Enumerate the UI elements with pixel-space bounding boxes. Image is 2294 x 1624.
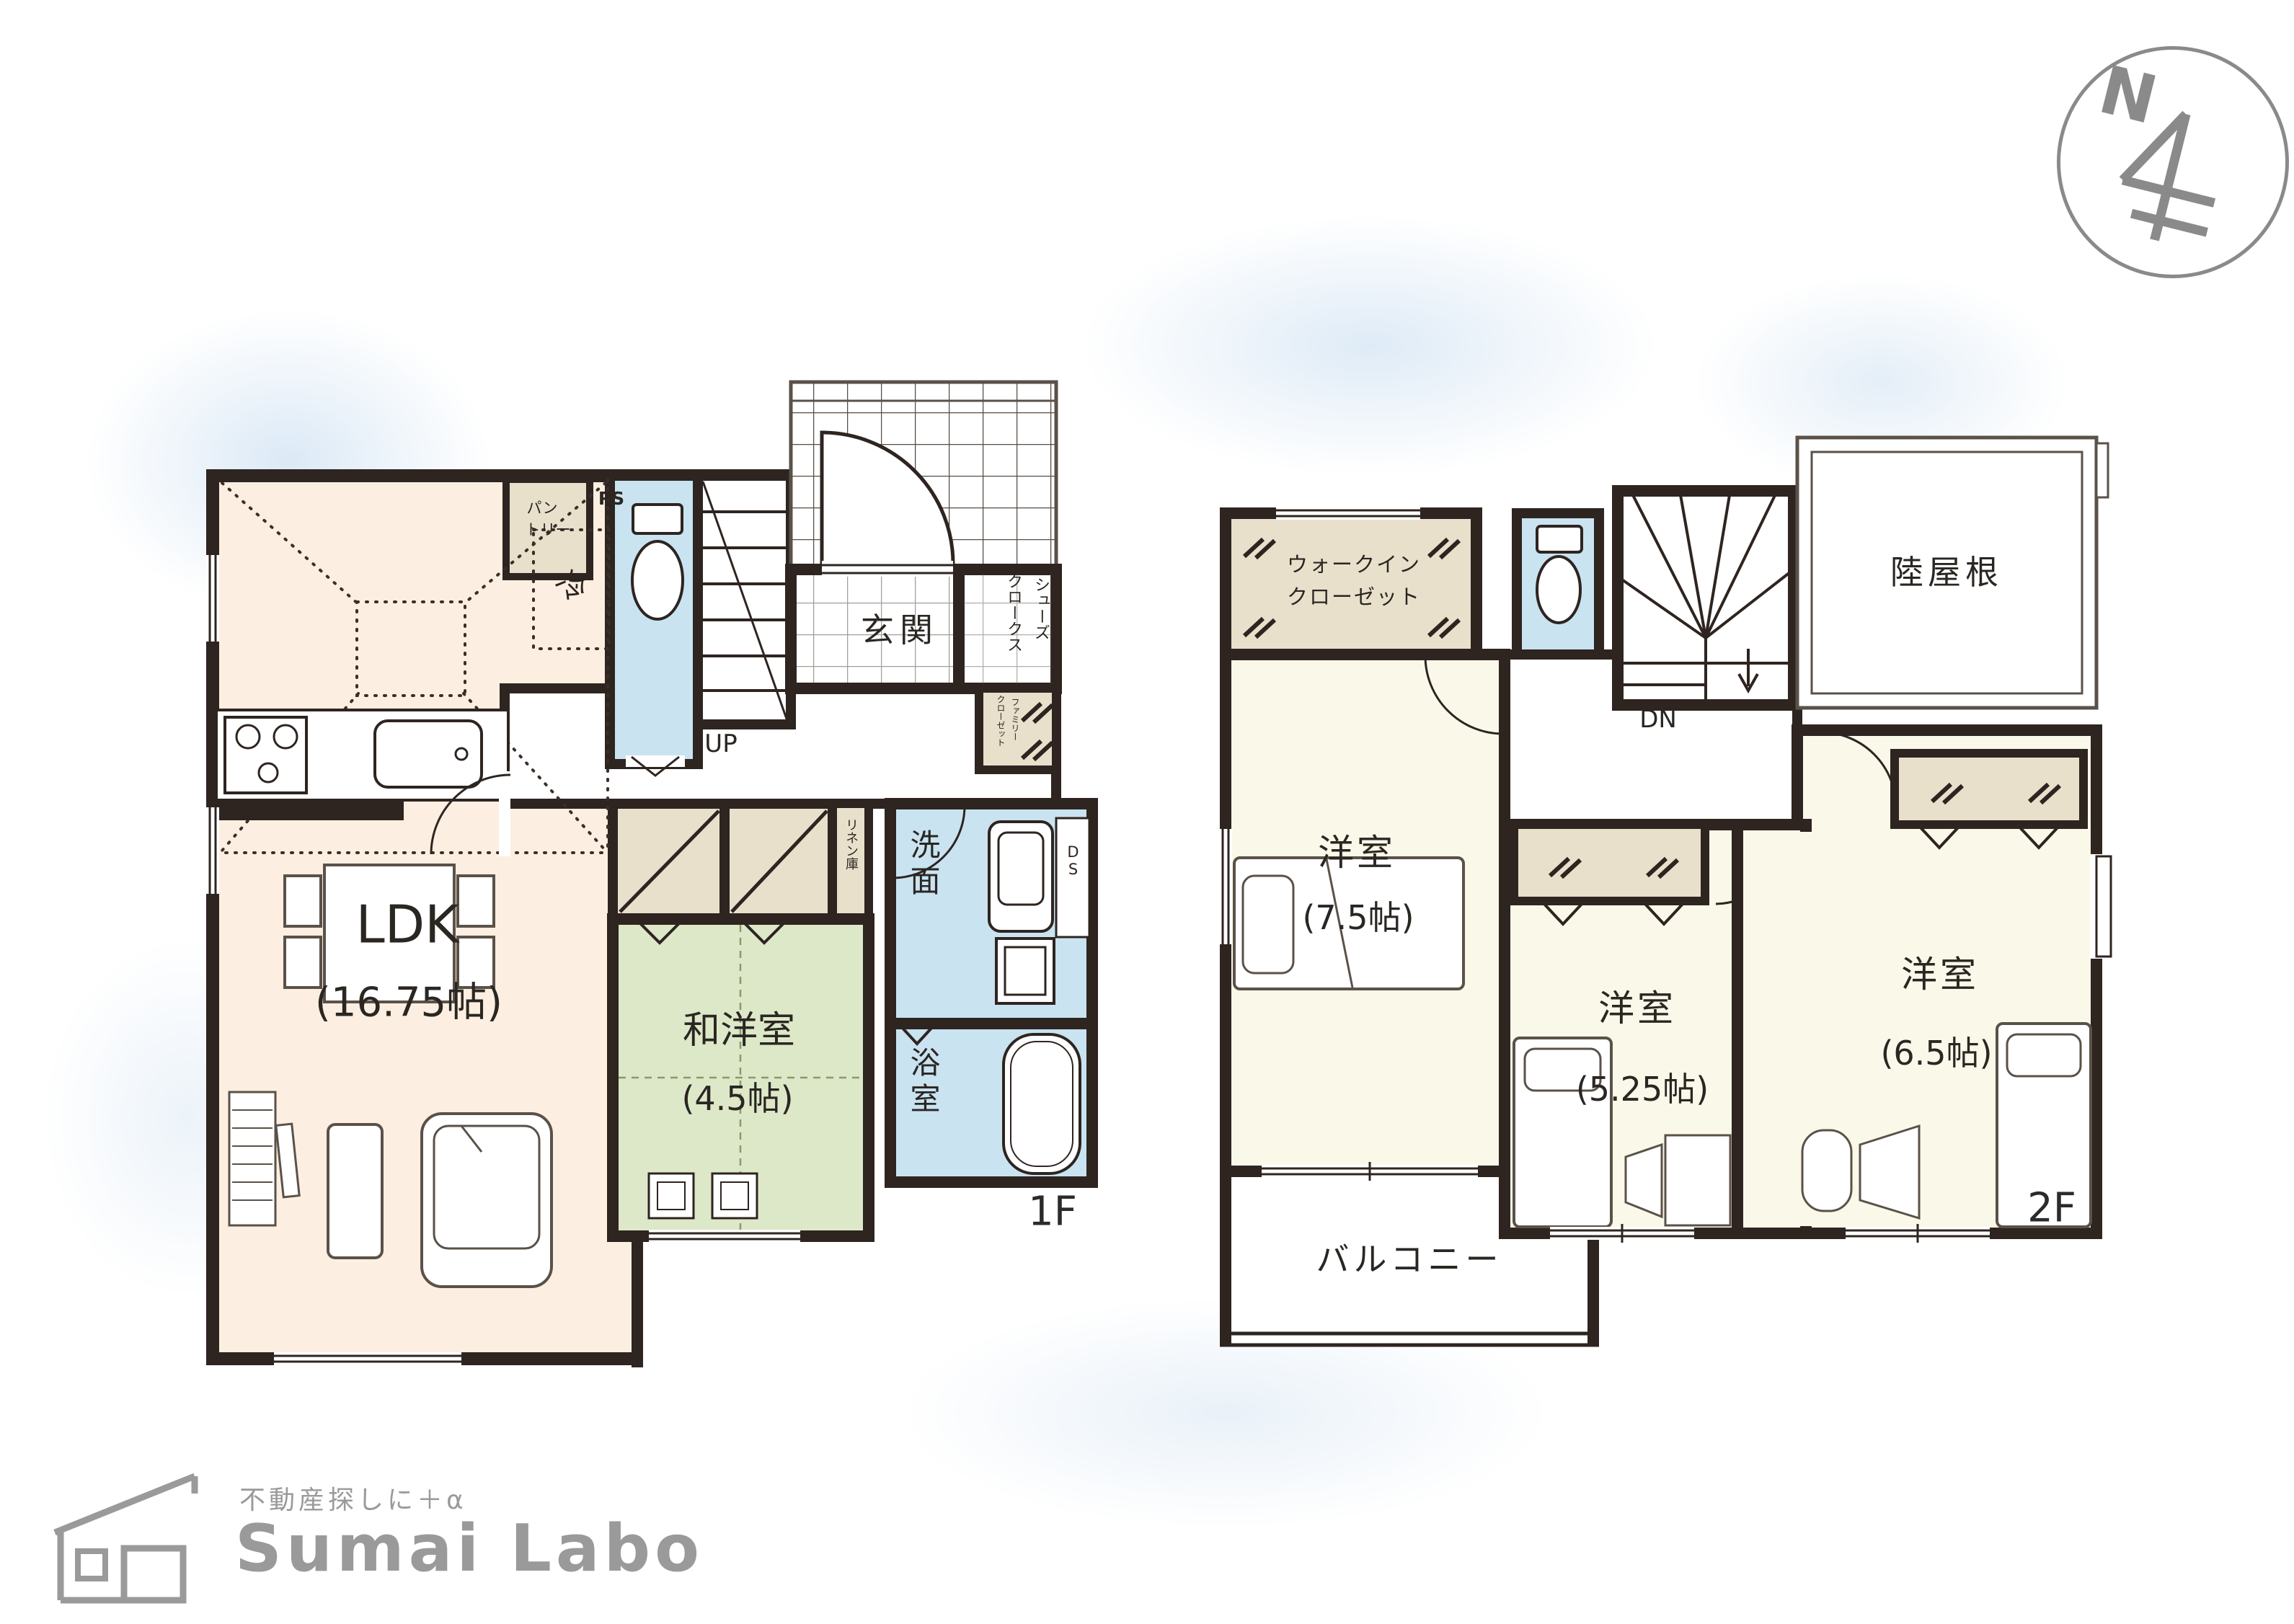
- floor2-label: 2F: [2027, 1186, 2076, 1232]
- stairs-dn-label: DN: [1639, 706, 1677, 733]
- bedroom2-label: 洋室: [1598, 988, 1676, 1029]
- family-closet-label-col1: ファミリー: [1011, 698, 1019, 741]
- linen-label: リネン庫: [844, 818, 857, 870]
- toilet-2f: [1517, 513, 1599, 655]
- washroom-label: 洗面: [908, 829, 938, 901]
- wic-label-line1: ウォークイン: [1287, 553, 1421, 576]
- closet-row: [613, 804, 869, 919]
- bedroom1-label: 洋室: [1318, 833, 1396, 873]
- bedroom3-label: 洋室: [1901, 954, 1979, 995]
- entrance-porch: [791, 382, 1056, 569]
- stairs-up-label: UP: [704, 730, 737, 758]
- ldk-size-label: (16.75帖): [315, 981, 502, 1026]
- ds-label: DS: [1066, 843, 1081, 878]
- stairs-dn: [1618, 491, 1794, 705]
- shoes-closet-label-col1: シューズ: [1032, 577, 1048, 640]
- floorplan-page: LDK (16.75帖) 和洋室 (4.5帖) 玄関 シューズ クロークス UP…: [0, 0, 2294, 1624]
- wall-segment: [632, 1230, 643, 1367]
- sofa: [422, 1114, 552, 1287]
- bedroom1-size-label: (7.5帖): [1302, 900, 1414, 937]
- floor1-label: 1F: [1028, 1190, 1077, 1235]
- coffee-table: [328, 1124, 382, 1258]
- ps-label: PS: [598, 489, 624, 509]
- bedroom3-size-label: (6.5帖): [1880, 1035, 1992, 1073]
- pantry-label-line1: パン: [526, 500, 557, 518]
- ldk-label: LDK: [356, 896, 459, 954]
- sink: [375, 721, 482, 787]
- wic-label-line2: クローゼット: [1287, 585, 1421, 608]
- bedroom2-size-label: (5.25帖): [1576, 1071, 1709, 1109]
- toilet-1f: [610, 476, 698, 776]
- chair: [1802, 1130, 1851, 1211]
- pantry-label-line2: トリー: [526, 522, 571, 539]
- washitsu-label: 和洋室: [683, 1010, 795, 1052]
- flat-roof-label: 陸屋根: [1890, 554, 2003, 592]
- desk: [1665, 1135, 1730, 1225]
- plan-exterior: [637, 1242, 846, 1375]
- room-washitsu: [613, 919, 869, 1236]
- family-closet-label-col2: クローゼット: [996, 695, 1005, 747]
- genkan-label: 玄関: [861, 612, 939, 649]
- washitsu-size-label: (4.5帖): [681, 1081, 793, 1118]
- compass-needle-icon: [2057, 46, 2282, 271]
- logo-house-icon: [45, 1462, 218, 1606]
- stairs-up: [698, 476, 791, 724]
- balcony-label: バルコニー: [1316, 1241, 1502, 1279]
- floor1-plan-drawing: [130, 332, 1139, 1398]
- logo-name: Sumai Labo: [235, 1511, 704, 1587]
- bathroom-label: 浴室: [908, 1047, 938, 1119]
- bathtub: [1004, 1034, 1080, 1173]
- shoes-closet-label-col2: クロークス: [1005, 573, 1021, 652]
